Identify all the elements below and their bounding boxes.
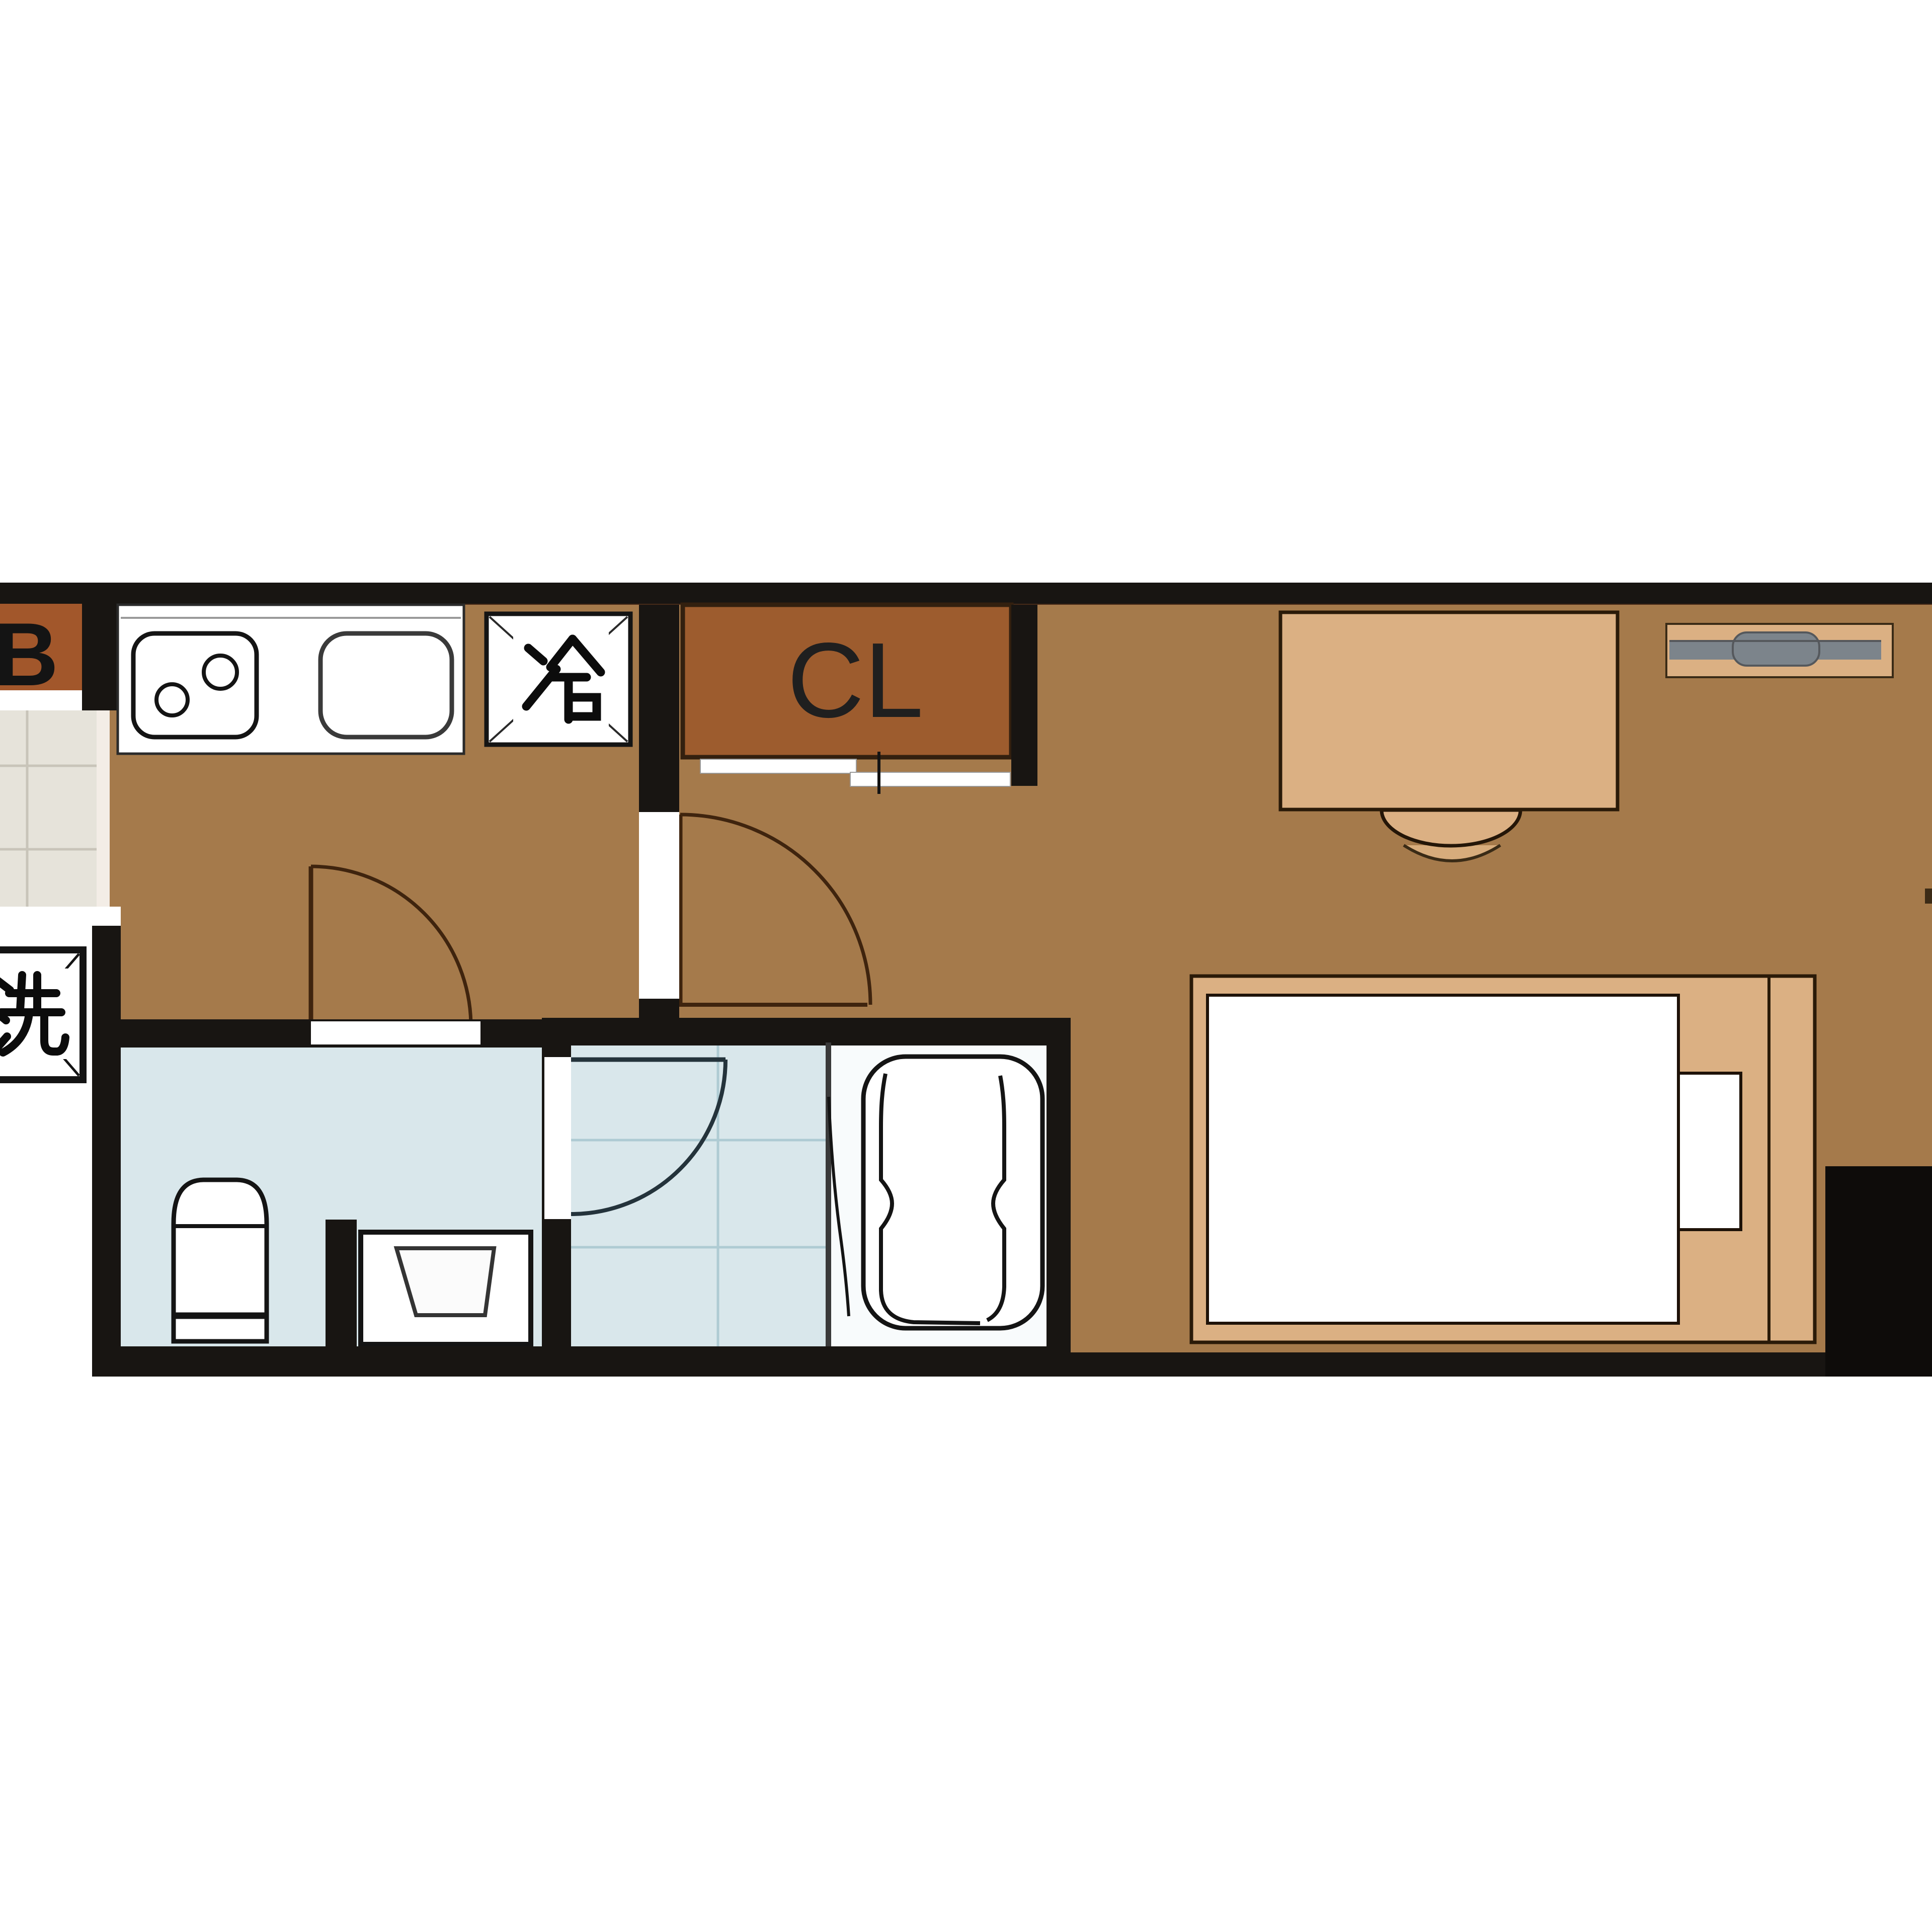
svg-text:CL: CL xyxy=(787,620,923,740)
svg-text:B: B xyxy=(0,604,58,704)
